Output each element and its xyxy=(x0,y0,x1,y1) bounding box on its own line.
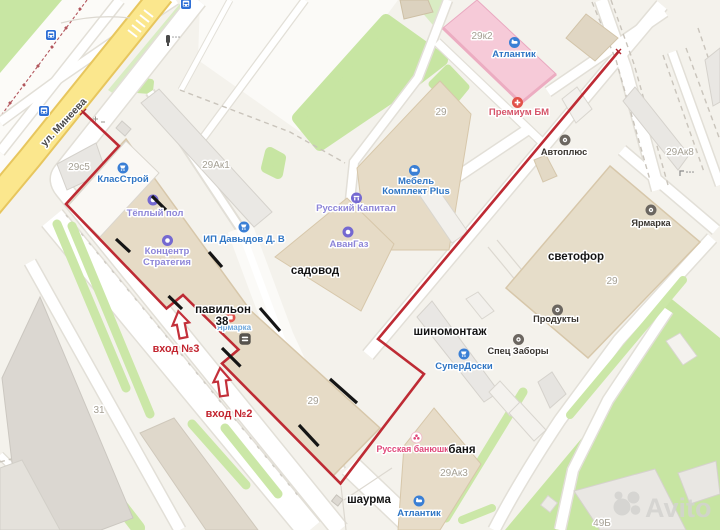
svg-text:Русская банюшка: Русская банюшка xyxy=(377,444,454,454)
svg-text:Avito: Avito xyxy=(645,493,712,523)
svg-text:Атлантик: Атлантик xyxy=(397,508,441,519)
svg-text:29: 29 xyxy=(606,276,618,287)
svg-text:СуперДоски: СуперДоски xyxy=(435,361,493,372)
svg-text:Премиум БМ: Премиум БМ xyxy=(489,107,549,118)
svg-text:баня: баня xyxy=(448,444,475,456)
svg-text:Стратегия: Стратегия xyxy=(143,257,191,268)
svg-text:светофор: светофор xyxy=(548,251,604,263)
svg-text:49Б: 49Б xyxy=(593,518,611,529)
svg-text:Спец Заборы: Спец Заборы xyxy=(487,346,548,356)
svg-text:вход №2: вход №2 xyxy=(206,408,253,420)
svg-text:Ярмарка: Ярмарка xyxy=(631,218,671,228)
svg-text:29Ак1: 29Ак1 xyxy=(202,160,230,171)
svg-text:садовод: садовод xyxy=(291,265,340,277)
svg-text:Концентр: Концентр xyxy=(145,246,190,257)
svg-text:Атлантик: Атлантик xyxy=(492,49,536,60)
svg-text:КласСтрой: КласСтрой xyxy=(97,174,149,185)
svg-text:29с5: 29с5 xyxy=(68,162,90,173)
svg-text:шаурма: шаурма xyxy=(347,494,391,506)
svg-text:29к2: 29к2 xyxy=(471,31,492,42)
svg-text:ИП Давыдов Д. В: ИП Давыдов Д. В xyxy=(203,234,285,245)
svg-text:29Ак8: 29Ак8 xyxy=(666,147,694,158)
svg-text:29Ак3: 29Ак3 xyxy=(440,468,468,479)
svg-text:31: 31 xyxy=(93,405,105,416)
svg-text:шиномонтаж: шиномонтаж xyxy=(414,326,488,338)
svg-text:Комплект Plus: Комплект Plus xyxy=(382,186,450,197)
svg-text:Автоплюс: Автоплюс xyxy=(541,147,587,157)
svg-text:павильон: павильон xyxy=(195,304,251,316)
svg-text:29: 29 xyxy=(435,107,447,118)
svg-text:Русский Капитал: Русский Капитал xyxy=(316,203,396,214)
svg-text:АванГаз: АванГаз xyxy=(330,239,369,250)
svg-text:Тёплый пол: Тёплый пол xyxy=(127,208,184,219)
svg-text:вход №3: вход №3 xyxy=(153,343,200,355)
svg-text:Продукты: Продукты xyxy=(533,314,579,324)
svg-text:38: 38 xyxy=(216,316,229,328)
svg-text:29: 29 xyxy=(307,396,319,407)
